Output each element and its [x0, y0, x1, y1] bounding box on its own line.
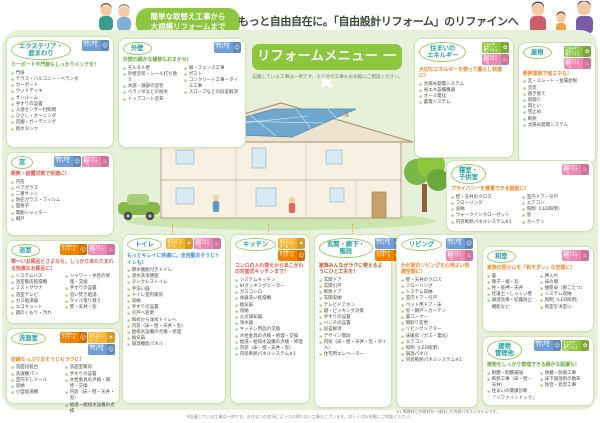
flower-bullet-icon: ❋	[123, 97, 126, 103]
person-icon: ☺	[79, 244, 87, 255]
category-tag-dannetsu: 気持ちよく断熱リフォーム♨	[562, 250, 589, 261]
category-box-bath: 浴室お手軽U.D.リフォーム☺気持ちよく断熱リフォーム♨寒〜いお風呂とさよなら。…	[6, 240, 120, 324]
category-tag-dannetsu: 気持ちよく断熱リフォーム♨	[194, 238, 221, 249]
category-tagline: カーポートや門扉もしっかりメンテを!	[11, 62, 109, 68]
people-icon: ☺	[73, 156, 81, 167]
menu-item-label: 調湿効果・結露防止機能など	[492, 298, 536, 310]
menu-item-label: 防音・遮音工事	[545, 383, 577, 389]
kettle-icon: ♨	[101, 156, 109, 167]
category-tag-label: 間取り変更リフォーム	[54, 156, 73, 167]
category-title: 寝室・ 子供室	[451, 164, 486, 184]
menu-item-columns: ❋太陽光発電システム❋省エネ設備機器❋オール電化❋蓄電システム	[419, 82, 509, 107]
category-tagline: 家族みんながラクに使えるようにひと工夫を!	[319, 263, 387, 276]
menu-item-column: ❋洗面室暖房❋手すりの設置❋水栓金具の点検・補修・交換❋内装（床・壁・天井・窓）…	[65, 365, 115, 415]
category-tagline: もっとキレイに快適に。全自動おそうじトイレも!	[127, 253, 221, 266]
category-box-living: リビング間取り変更リフォーム☺気持ちよく断熱リフォーム♨わが家のリビングを心地よ…	[396, 234, 478, 408]
kettle-icon: ♨	[107, 244, 115, 255]
menu-item-label: 内装断熱パネルシステム※1	[240, 352, 296, 358]
category-tag-madori: 間取り変更リフォーム☺	[54, 156, 81, 167]
leaf-icon: ✿	[581, 340, 589, 351]
flower-bullet-icon: ❋	[401, 358, 404, 364]
category-tagline: 外壁の細かな補修もおまかせ!	[123, 57, 241, 63]
category-title: リビング	[401, 238, 442, 251]
menu-list-subtitle: 記載している工事は一例です。その他の工事もお気軽にご相談ください。	[228, 74, 428, 80]
category-tagline: 収納たっぷりおそうじもラクに!	[11, 357, 115, 363]
category-box-header: エクステリア・ 庭まわり間取り変更リフォーム☺	[11, 40, 109, 60]
menu-item-label: 内装（床・壁・天井・窓・タイル）	[324, 340, 387, 352]
sparkle-icon: ✦	[107, 332, 115, 343]
menu-item-label: 内装（床・壁・天井・窓）	[70, 390, 115, 402]
category-box-tatemono: 建物 管理他間取り変更リフォーム☺エネルギーをかしこく使うリフォーム✿建物をしっ…	[482, 336, 594, 406]
menu-item: ❋住宅用エレベーター	[319, 352, 387, 358]
category-title: 窓	[11, 156, 33, 169]
flower-bullet-icon: ❋	[319, 340, 322, 352]
menu-item-label: 外壁塗装・シール打ち替え	[128, 72, 180, 84]
kettle-icon: ♨	[501, 54, 509, 65]
connector-line	[352, 224, 353, 234]
menu-item: ❋外壁塗装・シール打ち替え	[123, 72, 180, 84]
menu-item: ❋内装（床・壁・天井・窓・タイル）	[319, 340, 387, 352]
category-tags: 気持ちよく断熱リフォーム♨	[562, 164, 589, 175]
flower-bullet-icon: ❋	[11, 127, 14, 133]
connector-line	[172, 224, 173, 234]
menu-item: ❋住まいの健康診断「リファインドック」	[487, 389, 536, 401]
menu-item-label: 断熱工事（床・壁・天井）	[492, 377, 536, 389]
category-box-kitchen: キッチンおそうじラクラクリフォーム✦お手軽U.D.リフォーム☺コンロの入れ替えか…	[230, 234, 310, 404]
category-tag-dannetsu: 気持ちよく断熱リフォーム♨	[564, 58, 591, 69]
category-tags: 間取り変更リフォーム☺気持ちよく断熱リフォーム♨	[444, 238, 473, 261]
category-title: 洗面室	[11, 332, 46, 345]
category-box-washitsu: 和室気持ちよく断熱リフォーム♨家族の団らんを「和モダン」な空間に!❋畳❋障子・襖…	[482, 246, 594, 332]
menu-item-label: 太陽光発電システム	[528, 123, 568, 129]
menu-item-columns: ❋耐震・制震補強❋断熱工事（床・壁・天井）❋住まいの健康診断「リファインドック」…	[487, 371, 589, 402]
menu-item: ❋小型給湯機	[11, 390, 61, 396]
category-box-mado: 窓間取り変更リフォーム☺気持ちよく断熱リフォーム♨断熱・結露対策で快適に!❋内窓…	[6, 152, 114, 236]
category-tag-ud: お手軽U.D.リフォーム☺	[60, 332, 87, 343]
menu-item: ❋スロープなどの段差解消	[184, 90, 241, 96]
menu-item: ❋防音・遮音工事	[540, 383, 589, 389]
menu-list-title: リフォームメニュー 一覧	[252, 44, 402, 70]
flower-bullet-icon: ❋	[65, 274, 68, 286]
category-tag-label: 間取り変更リフォーム	[88, 344, 107, 355]
menu-item: ❋調湿効果・結露防止機能など	[487, 298, 536, 310]
category-tag-label: 気持ちよく断熱リフォーム	[446, 250, 465, 261]
menu-item: ❋和室を洋室に	[540, 305, 589, 311]
menu-item-column: ❋耐震・制震補強❋断熱工事（床・壁・天井）❋住まいの健康診断「リファインドック」	[487, 371, 536, 402]
menu-item-column: ❋押入れ❋床の間❋掘座卓（掘ごたつ）❋システム収納❋照明（LED照明）❋和室を洋…	[540, 274, 589, 311]
menu-item-columns: ❋壁・天井のクロス❋フローリング❋システム収納❋室内ドア・引戸❋ペット用ドア・床…	[401, 278, 473, 365]
category-box-header: 洗面室お手軽U.D.リフォーム☺おそうじラクラクリフォーム✦間取り変更リフォーム…	[11, 332, 115, 355]
category-box-header: リビング間取り変更リフォーム☺気持ちよく断熱リフォーム♨	[401, 238, 473, 261]
menu-item-label: 照明（LED照明）	[527, 207, 563, 213]
footnote-bottom: ※記載している工事は一例です。お住まいの状況によっては承れない工事もございます。…	[0, 414, 600, 420]
menu-item: ❋トップコート塗布	[123, 97, 180, 103]
category-tag-madori: 間取り変更リフォーム☺	[82, 40, 109, 51]
flower-bullet-icon: ❋	[127, 342, 130, 348]
category-tag-soap: おそうじラクラクリフォーム✦	[278, 238, 305, 249]
category-tag-label: おそうじラクラクリフォーム	[166, 238, 185, 249]
category-title: トイレ	[127, 238, 162, 251]
flower-bullet-icon: ❋	[451, 220, 454, 226]
leaf-icon: ✿	[583, 46, 591, 57]
menu-item-column: ❋壁・天井のクロス❋フローリング❋収納❋ウォークインクローゼット❋内装断熱パネル…	[451, 195, 518, 226]
person-icon: ☺	[79, 332, 87, 343]
category-box-header: 浴室お手軽U.D.リフォーム☺気持ちよく断熱リフォーム♨	[11, 244, 115, 257]
category-tagline: 断熱・結露対策で快適に!	[11, 171, 109, 177]
flower-bullet-icon: ❋	[319, 352, 322, 358]
kettle-icon: ♨	[581, 164, 589, 175]
people-icon: ☺	[465, 238, 473, 249]
menu-item-column: ❋洗面化粧台❋洗濯機パン❋室内干しツール❋収納❋小型給湯機	[11, 365, 61, 415]
menu-item-column: ❋塀・フェンス工事❋ポスト❋コンクリート工事・タイル工事❋スロープなどの段差解消	[184, 66, 241, 103]
category-tagline: プライバシーを尊重できる個室に!	[451, 186, 589, 192]
menu-item: ❋コンクリート工事・タイル工事	[184, 78, 241, 90]
category-tagline: 寒〜いお風呂とさよなら。しっかりあたたまれる快適なお風呂に!	[11, 259, 115, 272]
category-tag-label: おそうじラクラクリフォーム	[278, 238, 297, 249]
menu-item-label: 住まいの健康診断「リファインドック」	[492, 389, 536, 401]
flower-bullet-icon: ❋	[522, 220, 525, 226]
menu-item: ❋網戸	[11, 217, 109, 223]
sparkle-icon: ✦	[185, 238, 193, 249]
category-tag-energy: エネルギーをかしこく使うリフォーム✿	[564, 46, 591, 57]
category-tagline: 大切なエネルギーを使って暮らし快適に!	[419, 67, 509, 80]
menu-item-label: シャワー・水栓の修理・交換	[70, 274, 115, 286]
category-tag-dannetsu: 気持ちよく断熱リフォーム♨	[82, 156, 109, 167]
category-tag-label: お手軽U.D.リフォーム	[375, 250, 394, 261]
menu-item-columns: ❋内窓❋ペアガラス❋二重サッシ❋防犯ガラス・フィルム❋面格子❋電動シャッター❋網…	[11, 180, 109, 223]
menu-item-column: ❋室内ドア・引戸❋エアコン❋照明（LED照明）❋窓❋カーテン	[522, 195, 589, 226]
menu-item-label: スロープなどの段差解消	[189, 90, 238, 96]
category-box-senmen: 洗面室お手軽U.D.リフォーム☺おそうじラクラクリフォーム✦間取り変更リフォーム…	[6, 328, 120, 404]
menu-item-label: 網戸	[16, 217, 25, 223]
category-tags: エネルギーをかしこく使うリフォーム✿気持ちよく断熱リフォーム♨	[554, 46, 591, 69]
people-icon: ☺	[553, 340, 561, 351]
category-tags: お手軽U.D.リフォーム☺おそうじラクラクリフォーム✦間取り変更リフォーム☺	[59, 332, 115, 355]
category-tag-label: エネルギーをかしこく使うリフォーム	[482, 42, 501, 53]
connector-line	[268, 224, 269, 234]
people-icon: ☺	[101, 40, 109, 51]
menu-item-columns: ❋システムキッチン❋IHクッキングヒーター❋ガスコンロ❋食器洗い乾燥機❋換気扇❋…	[235, 278, 305, 359]
menu-item: ❋内装断熱パネルシステム※1	[401, 358, 473, 364]
flower-bullet-icon: ❋	[540, 383, 543, 389]
menu-item: ❋内装断熱パネルシステム※1	[451, 220, 518, 226]
menu-item: ❋壁・天井・窓	[65, 305, 115, 311]
kettle-icon: ♨	[465, 250, 473, 261]
menu-item-column: ❋シャワー・水栓の修理・交換❋手すりの設置❋追い焚き給湯❋タイル張り替え❋壁・天…	[65, 274, 115, 317]
category-tag-label: 気持ちよく断熱リフォーム	[88, 244, 107, 255]
category-tags: 間取り変更リフォーム☺気持ちよく断熱リフォーム♨	[54, 156, 109, 167]
menu-item-label: 雨水タンク	[16, 127, 39, 133]
menu-item-column: ❋防蟻・防腐工事❋床下調湿剤の散布❋防音・遮音工事	[540, 371, 589, 402]
menu-item-label: 水栓金具の点検・補修・交換	[70, 378, 115, 390]
category-tags: 気持ちよく断熱リフォーム♨	[562, 250, 589, 261]
flower-bullet-icon: ❋	[235, 352, 238, 358]
people-icon: ☺	[233, 42, 241, 53]
menu-item: ❋太陽光発電システム	[523, 123, 591, 129]
category-tag-label: 間取り変更リフォーム	[446, 238, 465, 249]
category-tag-ud: お手軽U.D.リフォーム☺	[278, 250, 305, 261]
flower-bullet-icon: ❋	[523, 123, 526, 129]
category-tag-label: 間取り変更リフォーム	[214, 42, 233, 53]
category-tag-dannetsu: 気持ちよく断熱リフォーム♨	[482, 54, 509, 65]
menu-item-columns: ❋システムバス❋浴室暖房乾燥機❋ミストサウナ❋浴室テレビ❋ガス給湯器❋エコキュー…	[11, 274, 115, 317]
category-tag-label: 気持ちよく断熱リフォーム	[482, 54, 501, 65]
category-title: エクステリア・ 庭まわり	[11, 40, 71, 60]
menu-item-label: 壁・天井・窓	[70, 305, 97, 311]
category-tag-label: エネルギーをかしこく使うリフォーム	[564, 46, 583, 57]
leaf-icon: ✿	[501, 42, 509, 53]
category-tag-label: おそうじラクラクリフォーム	[88, 332, 107, 343]
category-title: 玄関・廊下・ 階段	[319, 238, 373, 258]
door	[372, 192, 386, 218]
flower-bullet-icon: ❋	[65, 378, 68, 390]
category-box-header: 寝室・ 子供室気持ちよく断熱リフォーム♨	[451, 164, 589, 184]
category-tag-soap: おそうじラクラクリフォーム✦	[166, 238, 193, 249]
category-tag-label: 気持ちよく断熱リフォーム	[562, 250, 581, 261]
flower-bullet-icon: ❋	[184, 90, 187, 96]
category-title: キッチン	[235, 238, 276, 251]
flower-bullet-icon: ❋	[65, 305, 68, 311]
flower-bullet-icon: ❋	[419, 100, 422, 106]
menu-item-label: 調湿機能パネル	[132, 342, 164, 348]
category-tag-label: お手軽U.D.リフォーム	[60, 244, 79, 255]
menu-item: ❋断熱工事（床・壁・天井）	[487, 377, 536, 389]
category-tag-dannetsu: 気持ちよく断熱リフォーム♨	[88, 244, 115, 255]
menu-item-column: ❋内窓❋ペアガラス❋二重サッシ❋防犯ガラス・フィルム❋面格子❋電動シャッター❋網…	[11, 180, 109, 223]
category-tagline: 建物をしっかり管理できる細かな配慮も!	[487, 362, 589, 368]
category-tags: エネルギーをかしこく使うリフォーム✿気持ちよく断熱リフォーム♨	[468, 42, 509, 65]
menu-item-label: 蓄電システム	[424, 100, 451, 106]
flower-bullet-icon: ❋	[540, 305, 543, 311]
category-box-header: キッチンおそうじラクラクリフォーム✦お手軽U.D.リフォーム☺	[235, 238, 305, 261]
category-tags: 間取り変更リフォーム☺	[82, 40, 109, 51]
category-tag-dannetsu: 気持ちよく断熱リフォーム♨	[446, 250, 473, 261]
category-tags: 間取り変更リフォーム☺エネルギーをかしこく使うリフォーム✿	[534, 340, 589, 351]
category-tag-energy: エネルギーをかしこく使うリフォーム✿	[562, 340, 589, 351]
category-tags: おそうじラクラクリフォーム✦気持ちよく断熱リフォーム♨	[166, 238, 221, 249]
menu-item-column: ❋畳❋障子・襖・窓❋柱・長押・天井❋珪藻土・しっくい壁❋調湿効果・結露防止機能な…	[487, 274, 536, 311]
menu-item-columns: ❋畳❋障子・襖・窓❋柱・長押・天井❋珪藻土・しっくい壁❋調湿効果・結露防止機能な…	[487, 274, 589, 311]
menu-item: ❋調湿機能パネル	[127, 342, 221, 348]
flower-bullet-icon: ❋	[487, 377, 490, 389]
category-box-header: 窓間取り変更リフォーム☺気持ちよく断熱リフォーム♨	[11, 156, 109, 169]
people-icon: ☺	[107, 344, 115, 355]
category-tag-madori: 間取り変更リフォーム☺	[534, 340, 561, 351]
menu-item: ❋内装断熱パネルシステム※1	[235, 352, 305, 358]
sparkle-icon: ✦	[297, 238, 305, 249]
menu-item-columns: ❋節水機能付きトイレ❋温水洗浄便座❋タンクレストイレ❋手洗い器❋トイレ室内暖房❋…	[127, 268, 221, 349]
category-tag-label: 気持ちよく断熱リフォーム	[194, 238, 213, 249]
category-tag-label: お手軽U.D.リフォーム	[278, 250, 297, 261]
tree-icon	[404, 151, 448, 212]
category-box-header: 建物 管理他間取り変更リフォーム☺エネルギーをかしこく使うリフォーム✿	[487, 340, 589, 360]
menu-item: ❋水栓金具の点検・補修・交換	[65, 378, 115, 390]
category-title: 建物 管理他	[487, 340, 522, 360]
category-tag-ud: お手軽U.D.リフォーム☺	[60, 244, 87, 255]
category-tagline: 断熱塗装で省エネも!	[523, 71, 591, 77]
category-tag-madori: 間取り変更リフォーム☺	[214, 42, 241, 53]
category-box-energy: 住まいの エネルギーエネルギーをかしこく使うリフォーム✿気持ちよく断熱リフォーム…	[414, 38, 514, 158]
menu-item-label: 小型給湯機	[16, 390, 39, 396]
category-box-header: 玄関・廊下・ 階段間取り変更リフォーム☺お手軽U.D.リフォーム☺	[319, 238, 387, 261]
flower-bullet-icon: ❋	[123, 72, 126, 84]
menu-item-column: ❋システムバス❋浴室暖房乾燥機❋ミストサウナ❋浴室テレビ❋ガス給湯器❋エコキュー…	[11, 274, 61, 317]
menu-item-label: 住宅用エレベーター	[324, 352, 365, 358]
flower-bullet-icon: ❋	[11, 390, 14, 396]
category-tag-label: エネルギーをかしこく使うリフォーム	[562, 340, 581, 351]
menu-item-label: 内装断熱パネルシステム※1	[406, 358, 462, 364]
person-icon: ☺	[297, 250, 305, 261]
category-title: 和室	[487, 250, 516, 263]
category-box-shinshitsu: 寝室・ 子供室気持ちよく断熱リフォーム♨プライバシーを尊重できる個室に!❋壁・天…	[446, 160, 594, 232]
category-box-genkan: 玄関・廊下・ 階段間取り変更リフォーム☺お手軽U.D.リフォーム☺家族みんながラ…	[314, 234, 392, 408]
menu-item-column: ❋太陽光発電システム❋省エネ設備機器❋オール電化❋蓄電システム	[419, 82, 509, 107]
kettle-icon: ♨	[213, 238, 221, 249]
menu-item-columns: ❋洗面化粧台❋洗濯機パン❋室内干しツール❋収納❋小型給湯機❋洗面室暖房❋手すりの…	[11, 365, 115, 415]
menu-item-label: カーテン	[527, 220, 545, 226]
category-tag-label: 気持ちよく断熱リフォーム	[564, 58, 583, 69]
menu-item: ❋鏡のくもり・汚れ	[11, 311, 61, 317]
category-tags: お手軽U.D.リフォーム☺気持ちよく断熱リフォーム♨	[60, 244, 115, 255]
category-title: 外壁	[123, 42, 152, 55]
category-tag-soap: おそうじラクラクリフォーム✦	[88, 332, 115, 343]
category-title: 屋根	[523, 46, 552, 59]
menu-item-label: 鏡のくもり・汚れ	[16, 311, 52, 317]
category-box-header: 和室気持ちよく断熱リフォーム♨	[487, 250, 589, 263]
category-box-toilet: トイレおそうじラクラクリフォーム✦気持ちよく断熱リフォーム♨もっとキレイに快適に…	[122, 234, 226, 404]
kettle-icon: ♨	[581, 250, 589, 261]
category-tag-energy: エネルギーをかしこく使うリフォーム✿	[482, 42, 509, 53]
menu-item: ❋シャワー・水栓の修理・交換	[65, 274, 115, 286]
category-tag-label: 気持ちよく断熱リフォーム	[82, 156, 101, 167]
kettle-icon: ♨	[583, 58, 591, 69]
category-tag-madori: 間取り変更リフォーム☺	[446, 238, 473, 249]
menu-item-columns: ❋門扉❋テラス・バルコニー・ベランダ❋カーポート❋ウッドデッキ❋サンルーム❋手す…	[11, 71, 109, 133]
menu-item-column: ❋節水機能付きトイレ❋温水洗浄便座❋タンクレストイレ❋手洗い器❋トイレ室内暖房❋…	[127, 268, 221, 349]
category-tag-dannetsu: 気持ちよく断熱リフォーム♨	[562, 164, 589, 175]
category-tagline: 家族の団らんを「和モダン」な空間に!	[487, 265, 589, 271]
category-box-yane: 屋根エネルギーをかしこく使うリフォーム✿気持ちよく断熱リフォーム♨断熱塗装で省エ…	[518, 42, 596, 164]
category-tag-label: お手軽U.D.リフォーム	[60, 332, 79, 343]
menu-item-label: 和室を洋室に	[545, 305, 572, 311]
menu-item-column: ❋瓦・スレート・金属屋根❋塗装❋葺き替え❋雨漏り❋雨とい❋雪止め❋断熱❋太陽光発…	[523, 79, 591, 129]
menu-item: ❋蓄電システム	[419, 100, 509, 106]
menu-item-label: 内装断熱パネルシステム※1	[456, 220, 512, 226]
flower-bullet-icon: ❋	[11, 311, 14, 317]
category-title: 浴室	[11, 244, 40, 257]
brochure-page: 簡単な取替え工事から 大規模リフォームまで もっと自由自在に。「自由設計リフォー…	[0, 0, 600, 423]
menu-item: ❋内装（床・壁・天井・窓）	[65, 390, 115, 402]
menu-item-columns: ❋瓦・スレート・金属屋根❋塗装❋葺き替え❋雨漏り❋雨とい❋雪止め❋断熱❋太陽光発…	[523, 79, 591, 129]
category-tags: おそうじラクラクリフォーム✦お手軽U.D.リフォーム☺	[278, 238, 305, 261]
category-tagline: わが家のリビングを心地よい快適空間に!	[401, 263, 473, 276]
car-icon	[118, 194, 160, 220]
category-box-header: 外壁間取り変更リフォーム☺	[123, 42, 241, 55]
menu-item-columns: ❋モルタル壁❋外壁塗装・シール打ち替え❋木部・鉄部の塗装❋ベランダなどの防水❋ト…	[123, 66, 241, 103]
menu-item-column: ❋システムキッチン❋IHクッキングヒーター❋ガスコンロ❋食器洗い乾燥機❋換気扇❋…	[235, 278, 305, 359]
flower-bullet-icon: ❋	[11, 217, 14, 223]
menu-item: ❋カーテン	[522, 220, 589, 226]
menu-item-column: ❋壁・天井のクロス❋フローリング❋システム収納❋室内ドア・引戸❋ペット用ドア・床…	[401, 278, 473, 365]
flower-bullet-icon: ❋	[65, 390, 68, 402]
category-tag-label: 間取り変更リフォーム	[82, 40, 101, 51]
menu-item-column: ❋門扉❋テラス・バルコニー・ベランダ❋カーポート❋ウッドデッキ❋サンルーム❋手す…	[11, 71, 109, 133]
menu-item-label: コンクリート工事・タイル工事	[189, 78, 241, 90]
category-title: 住まいの エネルギー	[419, 42, 466, 62]
category-tag-label: 間取り変更リフォーム	[534, 340, 553, 351]
category-box-header: 屋根エネルギーをかしこく使うリフォーム✿気持ちよく断熱リフォーム♨	[523, 46, 591, 69]
menu-item: ❋雨水タンク	[11, 127, 109, 133]
menu-item-columns: ❋壁・天井のクロス❋フローリング❋収納❋ウォークインクローゼット❋内装断熱パネル…	[451, 195, 589, 226]
menu-item-column: ❋モルタル壁❋外壁塗装・シール打ち替え❋木部・鉄部の塗装❋ベランダなどの防水❋ト…	[123, 66, 180, 103]
category-box-header: 住まいの エネルギーエネルギーをかしこく使うリフォーム✿気持ちよく断熱リフォーム…	[419, 42, 509, 65]
category-box-exterior: エクステリア・ 庭まわり間取り変更リフォーム☺カーポートや門扉もしっかりメンテを…	[6, 36, 114, 148]
category-tagline: コンロの入れ替えからあこがれの対面式キッチンまで!	[235, 263, 305, 276]
category-tag-label: 間取り変更リフォーム	[375, 238, 394, 249]
menu-item-columns: ❋玄関ドア❋玄関引戸❋断熱ドア❋玄関収納❋テレビドアホン❋鍵・ピッキング対策❋手…	[319, 278, 387, 359]
category-tags: 間取り変更リフォーム☺	[214, 42, 241, 53]
flower-bullet-icon: ❋	[487, 389, 490, 401]
category-box-header: トイレおそうじラクラクリフォーム✦気持ちよく断熱リフォーム♨	[127, 238, 221, 251]
menu-item-column: ❋玄関ドア❋玄関引戸❋断熱ドア❋玄関収納❋テレビドアホン❋鍵・ピッキング対策❋手…	[319, 278, 387, 359]
category-tag-label: 気持ちよく断熱リフォーム	[562, 164, 581, 175]
flower-bullet-icon: ❋	[487, 298, 490, 310]
flower-bullet-icon: ❋	[184, 78, 187, 90]
category-tag-madori: 間取り変更リフォーム☺	[88, 344, 115, 355]
menu-item-label: トップコート塗布	[128, 97, 164, 103]
category-box-gaiheki: 外壁間取り変更リフォーム☺外壁の細かな補修もおまかせ!❋モルタル壁❋外壁塗装・シ…	[118, 38, 246, 148]
